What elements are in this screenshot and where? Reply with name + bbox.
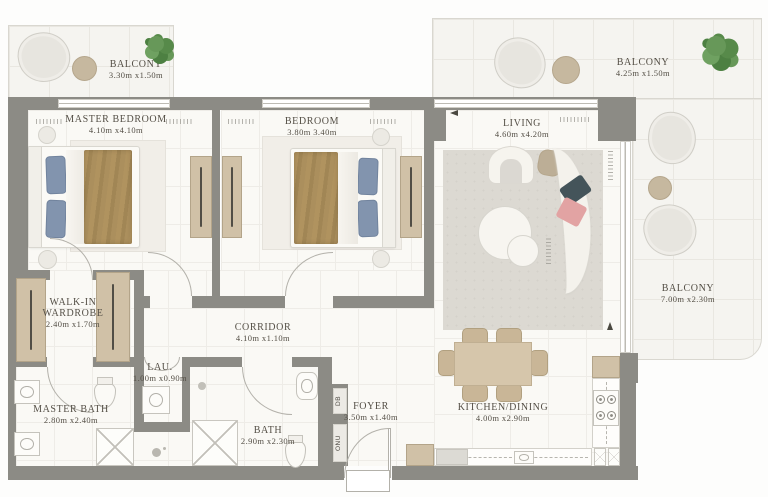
curtain-icon	[608, 150, 613, 180]
sliding-door-arrow	[607, 322, 613, 330]
kitchen-appliance	[594, 448, 606, 466]
room-label-master-bath: MASTER BATH2.80m x2.40m	[11, 404, 131, 426]
master-bed-blanket	[84, 150, 132, 244]
burner-icon	[607, 395, 616, 404]
living-armchair	[488, 146, 534, 184]
wall-lau-bottom	[134, 422, 190, 432]
burner-icon	[607, 411, 616, 420]
master-bed-headboard	[28, 146, 42, 248]
dining-chair	[462, 384, 488, 402]
wall-corridor-top-b	[192, 296, 285, 308]
kitchen-stove	[593, 390, 619, 426]
onu-shaft-label: ONU	[333, 424, 347, 462]
bedroom-bed-sheet	[336, 152, 358, 244]
master-bath-shower	[96, 428, 134, 466]
living-side-glazing	[620, 141, 631, 353]
kitchen-appliance	[608, 448, 620, 466]
wall-bottom-right	[392, 466, 638, 480]
master-bed-sheet	[66, 150, 86, 244]
wall-corridor-top-c	[333, 296, 434, 308]
column-living-bottom	[620, 353, 638, 383]
bath-sink	[296, 372, 318, 400]
shower-head-icon	[152, 448, 161, 457]
kitchen-sink	[514, 451, 534, 464]
balcony-tree	[148, 36, 164, 52]
room-label-bedroom: BEDROOM3.80m 3.40m	[242, 116, 382, 138]
kitchen-washer-cabinet	[436, 449, 468, 465]
column-living-right	[598, 97, 636, 141]
room-label-living: LIVING4.60m x4.20m	[452, 118, 592, 140]
wall-bottom-left	[8, 466, 344, 480]
bedroom-nightstand	[372, 250, 390, 268]
master-bed-pillow	[45, 200, 66, 239]
balcony-tree	[706, 36, 726, 56]
burner-icon	[596, 395, 605, 404]
dining-chair	[530, 350, 548, 376]
room-label-balcony-right: BALCONY7.00m x2.30m	[618, 283, 758, 305]
master-bed-pillow	[45, 156, 66, 195]
living-coffee-table-small	[507, 235, 539, 267]
laundry-washer	[142, 386, 170, 414]
burner-icon	[596, 411, 605, 420]
foyer-cabinet	[406, 444, 434, 466]
master-bedroom-closet	[190, 156, 212, 238]
living-balcony-door	[434, 99, 598, 108]
dining-table	[454, 342, 532, 386]
master-bath-vanity	[14, 380, 40, 404]
room-label-laundry: LAU.1.00m x0.90m	[110, 362, 210, 384]
bedroom-bed-headboard	[382, 148, 396, 248]
bedroom-bed-blanket	[294, 152, 338, 244]
room-label-bath: BATH2.90m x2.30m	[208, 425, 328, 447]
bedroom-closet-right	[400, 156, 422, 238]
balcony-round-table	[648, 176, 672, 200]
sliding-door-arrow	[450, 110, 458, 116]
entrance-threshold	[346, 470, 390, 492]
room-label-balcony-top-right: BALCONY4.25m x1.50m	[573, 57, 713, 79]
room-label-kitchen-dining: KITCHEN/DINING4.00m x2.90m	[433, 402, 573, 424]
dining-chair	[496, 384, 522, 402]
room-label-foyer: FOYER3.50m x1.40m	[311, 401, 431, 423]
room-label-master-bedroom: MASTER BEDROOM4.10m x4.10m	[36, 114, 196, 136]
wall-master-bedroom-divider	[212, 110, 220, 296]
wall-bedroom-living-divider	[424, 97, 434, 296]
room-label-balcony-top-left: BALCONY3.30m x1.50m	[76, 59, 196, 81]
room-label-walkin-wardrobe: WALK-IN WARDROBE2.40m x1.70m	[34, 297, 112, 330]
wall-corridor-top-a	[140, 296, 150, 308]
room-label-corridor: CORRIDOR4.10m x1.10m	[193, 322, 333, 344]
master-bath-vanity	[14, 432, 40, 456]
wall-left-upper	[8, 97, 28, 280]
floor-plan-canvas: DB ONU BALCONY3.30m x1.50m MASTER BEDROO…	[0, 0, 768, 497]
master-bedroom-window	[58, 99, 170, 108]
kitchen-tall-cabinet	[592, 356, 620, 378]
bedroom-bed-pillow	[357, 200, 378, 238]
bedroom-window	[262, 99, 370, 108]
bedroom-closet-left	[222, 156, 242, 238]
bedroom-bed-pillow	[357, 158, 378, 196]
